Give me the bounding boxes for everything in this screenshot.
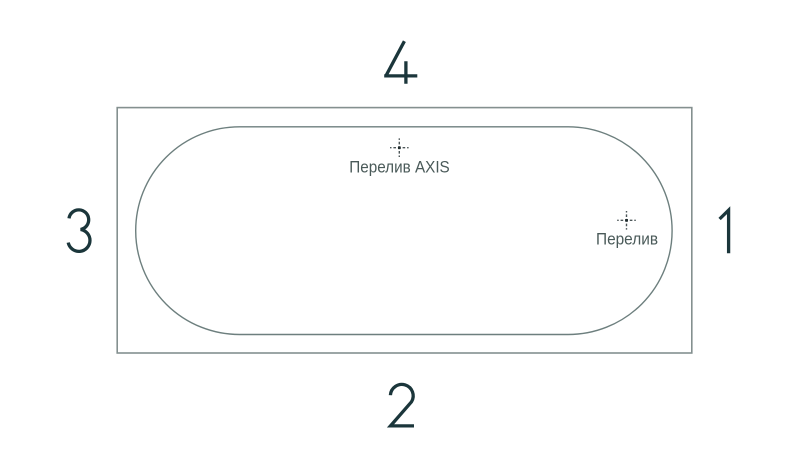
svg-text:Перелив: Перелив: [596, 231, 658, 249]
svg-text:Перелив AXIS: Перелив AXIS: [349, 159, 450, 177]
